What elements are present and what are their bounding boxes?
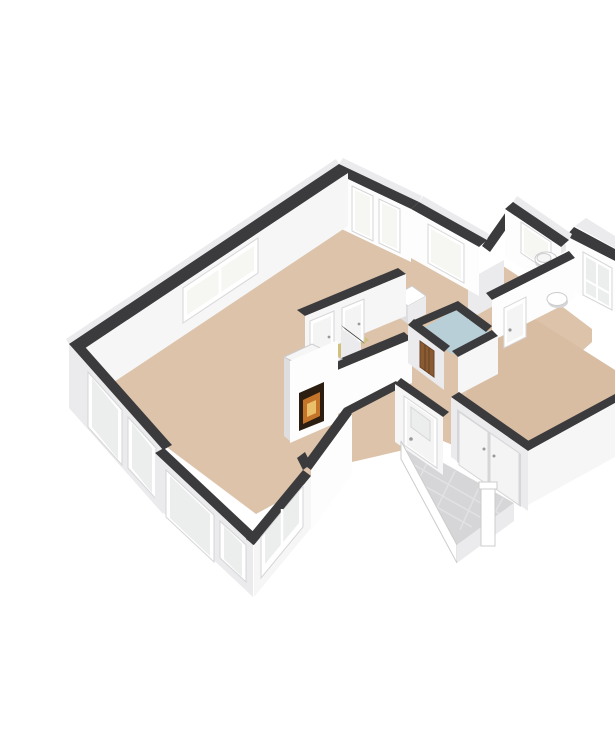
french-window-a-frame — [352, 186, 373, 241]
closet-a-door-handle — [328, 336, 331, 339]
sw-window-d-glass — [224, 526, 242, 577]
wardrobe-door-b — [490, 433, 519, 505]
wc-ne-wall-exterior — [513, 196, 572, 240]
core-divider-cap — [341, 325, 365, 344]
nw-window-glass — [187, 246, 254, 315]
hall-cabinet-front — [394, 296, 408, 324]
toilet-shadow — [535, 255, 559, 270]
bathroom-wall-cap-e — [452, 301, 492, 332]
front-door-wall-face — [395, 384, 443, 475]
toilet-lid — [537, 254, 551, 263]
toilet-room-floor — [505, 224, 570, 270]
bay-se-wall-cap — [246, 470, 311, 545]
bathroom-wall-face-w — [408, 325, 444, 390]
core-se-wall-face — [316, 339, 412, 423]
fireplace-top — [284, 344, 342, 372]
tile-line — [433, 505, 472, 527]
closet-a-floor — [316, 323, 369, 360]
bedroom-ne-wall-exterior — [575, 218, 615, 248]
tile-line — [460, 485, 480, 530]
ne-wall-exterior — [339, 158, 422, 202]
core-divider-face — [341, 328, 361, 379]
bay-window-e-glass — [265, 492, 299, 564]
bedroom-nw-wall-face — [492, 258, 575, 341]
bathroom-radiator — [420, 341, 434, 377]
bedroom-ne-wall-cap — [566, 227, 615, 261]
tile-line — [414, 457, 430, 489]
tile-line — [436, 471, 455, 510]
sw-upper-wall-face — [69, 344, 163, 514]
front-door-wall-cap — [395, 378, 449, 417]
bathroom-wall-cap-s — [452, 330, 498, 357]
wc-window-frame — [521, 222, 551, 273]
living-hall-floor — [92, 219, 592, 514]
landing-edge-fascia — [401, 441, 457, 563]
landing-tile-floor — [401, 440, 514, 545]
sw-window-d-frame — [220, 521, 246, 582]
wc-ne-wall-cap — [505, 202, 569, 247]
wc-ne-wall-face — [505, 209, 561, 295]
french-window-b-frame — [379, 199, 400, 253]
bay-window-e-frame — [261, 486, 303, 578]
sw-upper-wall-cap — [69, 339, 172, 450]
fire-opening — [299, 382, 324, 431]
bay-se-wall-face — [254, 476, 311, 597]
nw-wall-cap — [69, 164, 348, 353]
balcony-door-frame — [583, 252, 612, 310]
closet-a-door — [313, 316, 331, 358]
bedroom-floor — [465, 297, 615, 446]
floorplan-canvas — [0, 0, 615, 752]
closet-a-door-frame — [310, 311, 334, 363]
ne-wall-cap — [331, 164, 419, 209]
bathroom-wall-cap-w — [408, 319, 450, 352]
toilet-bowl — [535, 252, 557, 266]
wardrobe-wall-cap — [451, 392, 536, 451]
front-door-frame — [404, 396, 437, 468]
balcony-door-glass — [586, 257, 609, 306]
closet-b-door-handle — [358, 323, 361, 326]
bevel-window-frame — [428, 224, 464, 283]
bedroom-nw-wall-cap — [486, 251, 575, 300]
sw-window-a-glass — [92, 378, 118, 459]
nw-wall-exterior — [66, 159, 339, 344]
fireplace-front — [290, 340, 338, 443]
bevel-window-glass — [431, 229, 461, 279]
sw-window-a-frame — [88, 372, 122, 465]
link-wall-cap — [344, 381, 402, 414]
bedroom-ne-wall-face — [566, 236, 615, 313]
bathroom-wall-face-s — [458, 336, 498, 395]
bedroom-door — [507, 303, 523, 343]
notch-step-cap — [297, 452, 311, 470]
sink-shadow — [548, 296, 568, 308]
tile-line — [421, 484, 487, 521]
landing-edge-fascia-b — [457, 503, 514, 563]
tile-line — [481, 498, 503, 537]
tile-line — [409, 462, 500, 514]
wardrobe-wall-face — [451, 397, 528, 511]
bevel-wall-exterior — [419, 196, 489, 240]
balcony-door-bar — [586, 280, 609, 293]
hall-ne-face — [468, 260, 504, 320]
sw-window-c-frame — [166, 470, 214, 562]
fire-flame-core — [307, 400, 316, 417]
core-north-wall-face — [305, 274, 406, 358]
front-door — [407, 400, 434, 464]
fire-flame — [303, 392, 320, 424]
sw-window-b-glass — [132, 423, 152, 493]
closet-b-door-frame — [342, 299, 364, 350]
nw-wall-face — [78, 173, 348, 406]
french-window-a-glass — [355, 190, 370, 237]
front-door-glass — [411, 407, 430, 441]
bedroom-door-frame — [504, 297, 526, 348]
nw-window-frame — [183, 238, 258, 323]
sw-lower-wall-cap — [155, 448, 262, 545]
hall-cabinet-side — [408, 296, 426, 324]
bathroom-floor — [420, 309, 490, 354]
bevel-wall-face — [411, 209, 479, 296]
bedroom-se-wall-cap — [524, 394, 615, 451]
fireplace-side — [284, 357, 290, 441]
newel-post-cap — [479, 482, 497, 489]
core-se-wall-cap — [308, 332, 412, 379]
newel-post — [481, 486, 495, 546]
diag-wall-face — [311, 414, 352, 530]
floorplan-3d-render — [0, 0, 615, 752]
wardrobe-door-a — [459, 412, 488, 485]
bevel-wall-cap — [411, 202, 487, 247]
sw-lower-wall-face — [155, 453, 253, 597]
bedroom-door-handle — [508, 328, 511, 331]
wc-nw-cap — [482, 202, 521, 252]
closet-b-floor — [351, 337, 418, 386]
french-window-b-glass — [382, 203, 397, 249]
hall-cabinet-top — [394, 286, 426, 306]
sw-window-b-frame — [128, 417, 156, 499]
bathroom-wall-cap-n — [414, 301, 464, 326]
bedroom-se-wall-face — [528, 403, 615, 505]
wc-window-glass — [524, 227, 548, 269]
wardrobe-doors-frame — [457, 409, 521, 507]
wardrobe-handle — [483, 448, 486, 451]
closet-b-door — [345, 304, 361, 345]
sw-window-c-glass — [170, 476, 210, 556]
front-door-handle — [409, 437, 413, 441]
sink — [547, 293, 567, 306]
core-north-wall-cap — [297, 268, 406, 316]
wardrobe-handle — [493, 455, 496, 458]
ne-wall-face — [331, 171, 411, 262]
diag-wall-cap — [303, 408, 352, 470]
